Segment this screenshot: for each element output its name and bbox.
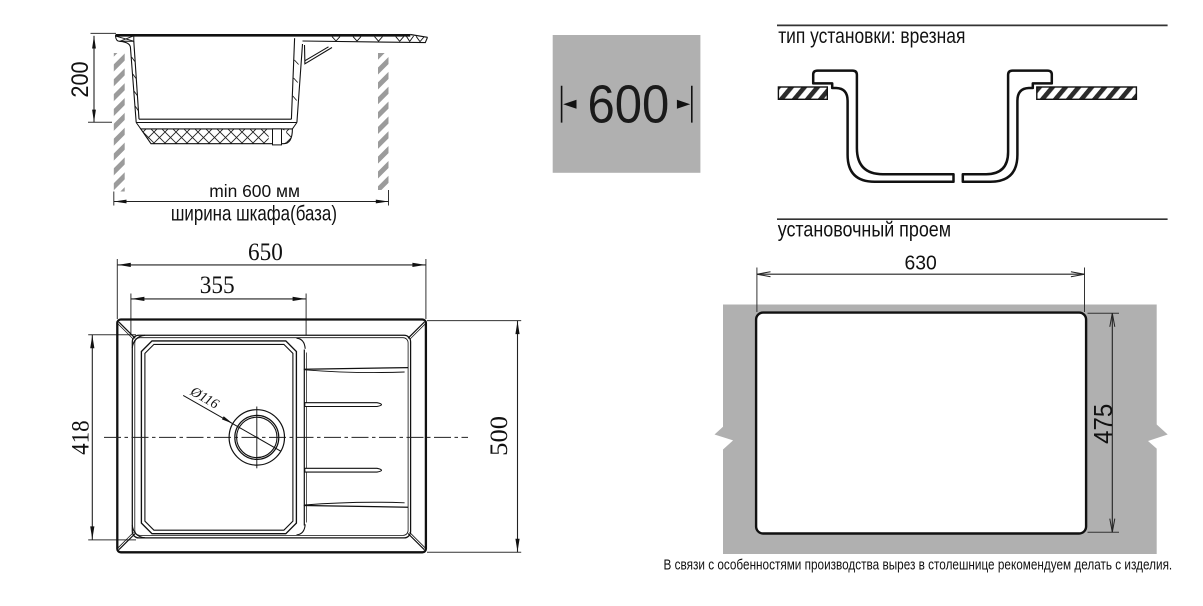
svg-text:200: 200 <box>67 61 94 97</box>
svg-text:475: 475 <box>1088 404 1118 444</box>
svg-text:500: 500 <box>486 416 513 456</box>
svg-text:ширина шкафа(база): ширина шкафа(база) <box>171 203 337 226</box>
svg-text:установочный проем: установочный проем <box>778 219 951 242</box>
svg-text:Ø116: Ø116 <box>187 384 221 413</box>
svg-text:600: 600 <box>588 76 670 135</box>
svg-text:355: 355 <box>200 272 235 299</box>
svg-text:650: 650 <box>248 239 283 266</box>
svg-text:418: 418 <box>67 420 94 455</box>
svg-text:В связи с особенностями произв: В связи с особенностями производства выр… <box>664 556 1173 573</box>
svg-text:630: 630 <box>904 253 936 275</box>
svg-text:min 600 мм: min 600 мм <box>209 181 300 201</box>
svg-text:тип установки: врезная: тип установки: врезная <box>778 25 965 48</box>
